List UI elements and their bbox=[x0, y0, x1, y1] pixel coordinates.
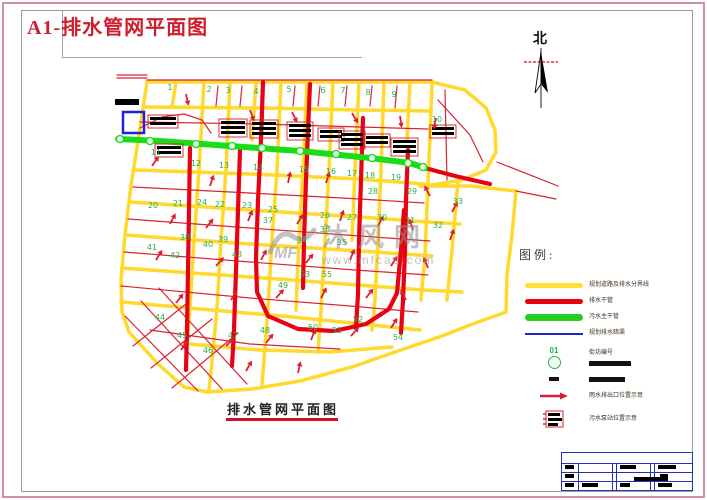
legend-swatch-arrow bbox=[519, 391, 589, 401]
north-needle-dark bbox=[541, 52, 548, 93]
north-label: 北 bbox=[533, 31, 547, 47]
map-caption: 排水管网平面图 bbox=[225, 399, 341, 418]
title-block-redacted-text bbox=[658, 465, 676, 469]
legend-title: 图例: bbox=[519, 246, 697, 263]
title-block-redacted-text bbox=[634, 477, 668, 481]
legend-item: 排水干管 bbox=[519, 298, 697, 305]
legend-swatch-blue-line bbox=[519, 333, 589, 335]
legend-swatch-green-line bbox=[519, 314, 589, 321]
title-block-redacted-text bbox=[620, 465, 636, 469]
legend-item-label: 排水干管 bbox=[589, 298, 697, 305]
legend-item: 规划道路及排水分界线 bbox=[519, 282, 697, 289]
title-block-line bbox=[616, 463, 617, 490]
legend-swatch-dash bbox=[519, 377, 589, 381]
title-block bbox=[561, 452, 693, 491]
title-block-line bbox=[578, 463, 579, 490]
title-block-redacted-text bbox=[565, 474, 574, 478]
legend-items: 规划道路及排水分界线排水干管污水主干管规划排水暗渠01街坊编号雨水排出口位置示意… bbox=[519, 282, 697, 428]
legend-item bbox=[519, 376, 697, 382]
title-block-line bbox=[612, 463, 613, 490]
drawing-sheet: A1-排水管网平面图 12345678910111213141516171819… bbox=[0, 0, 707, 500]
legend-swatch-pump bbox=[519, 410, 589, 428]
legend-swatch-yellow-line bbox=[519, 283, 589, 288]
title-block-redacted-text bbox=[582, 483, 598, 487]
title-block-redacted-text bbox=[658, 483, 672, 487]
legend-item-label bbox=[589, 377, 697, 382]
legend-item-label: 规划排水暗渠 bbox=[589, 330, 697, 337]
legend-item-label: 污水主干管 bbox=[589, 314, 697, 321]
legend-item: 01街坊编号 bbox=[519, 346, 697, 369]
legend-item-label: 街坊编号 bbox=[589, 350, 697, 366]
legend-item: 雨水排出口位置示意 bbox=[519, 391, 697, 401]
title-block-line bbox=[562, 481, 692, 482]
title-block-redacted-text bbox=[620, 483, 630, 487]
north-needle-light bbox=[535, 52, 541, 93]
legend-swatch-red-line bbox=[519, 299, 589, 304]
legend-swatch-well-number: 01 bbox=[519, 346, 589, 369]
caption-underline bbox=[226, 418, 338, 421]
legend-item: 污水主干管 bbox=[519, 314, 697, 321]
legend-item-label: 雨水排出口位置示意 bbox=[589, 393, 697, 400]
legend: 图例: 规划道路及排水分界线排水干管污水主干管规划排水暗渠01街坊编号雨水排出口… bbox=[519, 246, 697, 432]
title-block-line bbox=[562, 472, 692, 473]
title-block-redacted-text bbox=[565, 483, 574, 487]
legend-item: 污水泵站位置示意 bbox=[519, 410, 697, 428]
title-block-redacted-text bbox=[565, 465, 574, 469]
legend-item: 规划排水暗渠 bbox=[519, 330, 697, 337]
legend-item-label: 污水泵站位置示意 bbox=[589, 416, 697, 423]
title-block-line bbox=[562, 463, 692, 464]
legend-item-label: 规划道路及排水分界线 bbox=[589, 282, 697, 289]
